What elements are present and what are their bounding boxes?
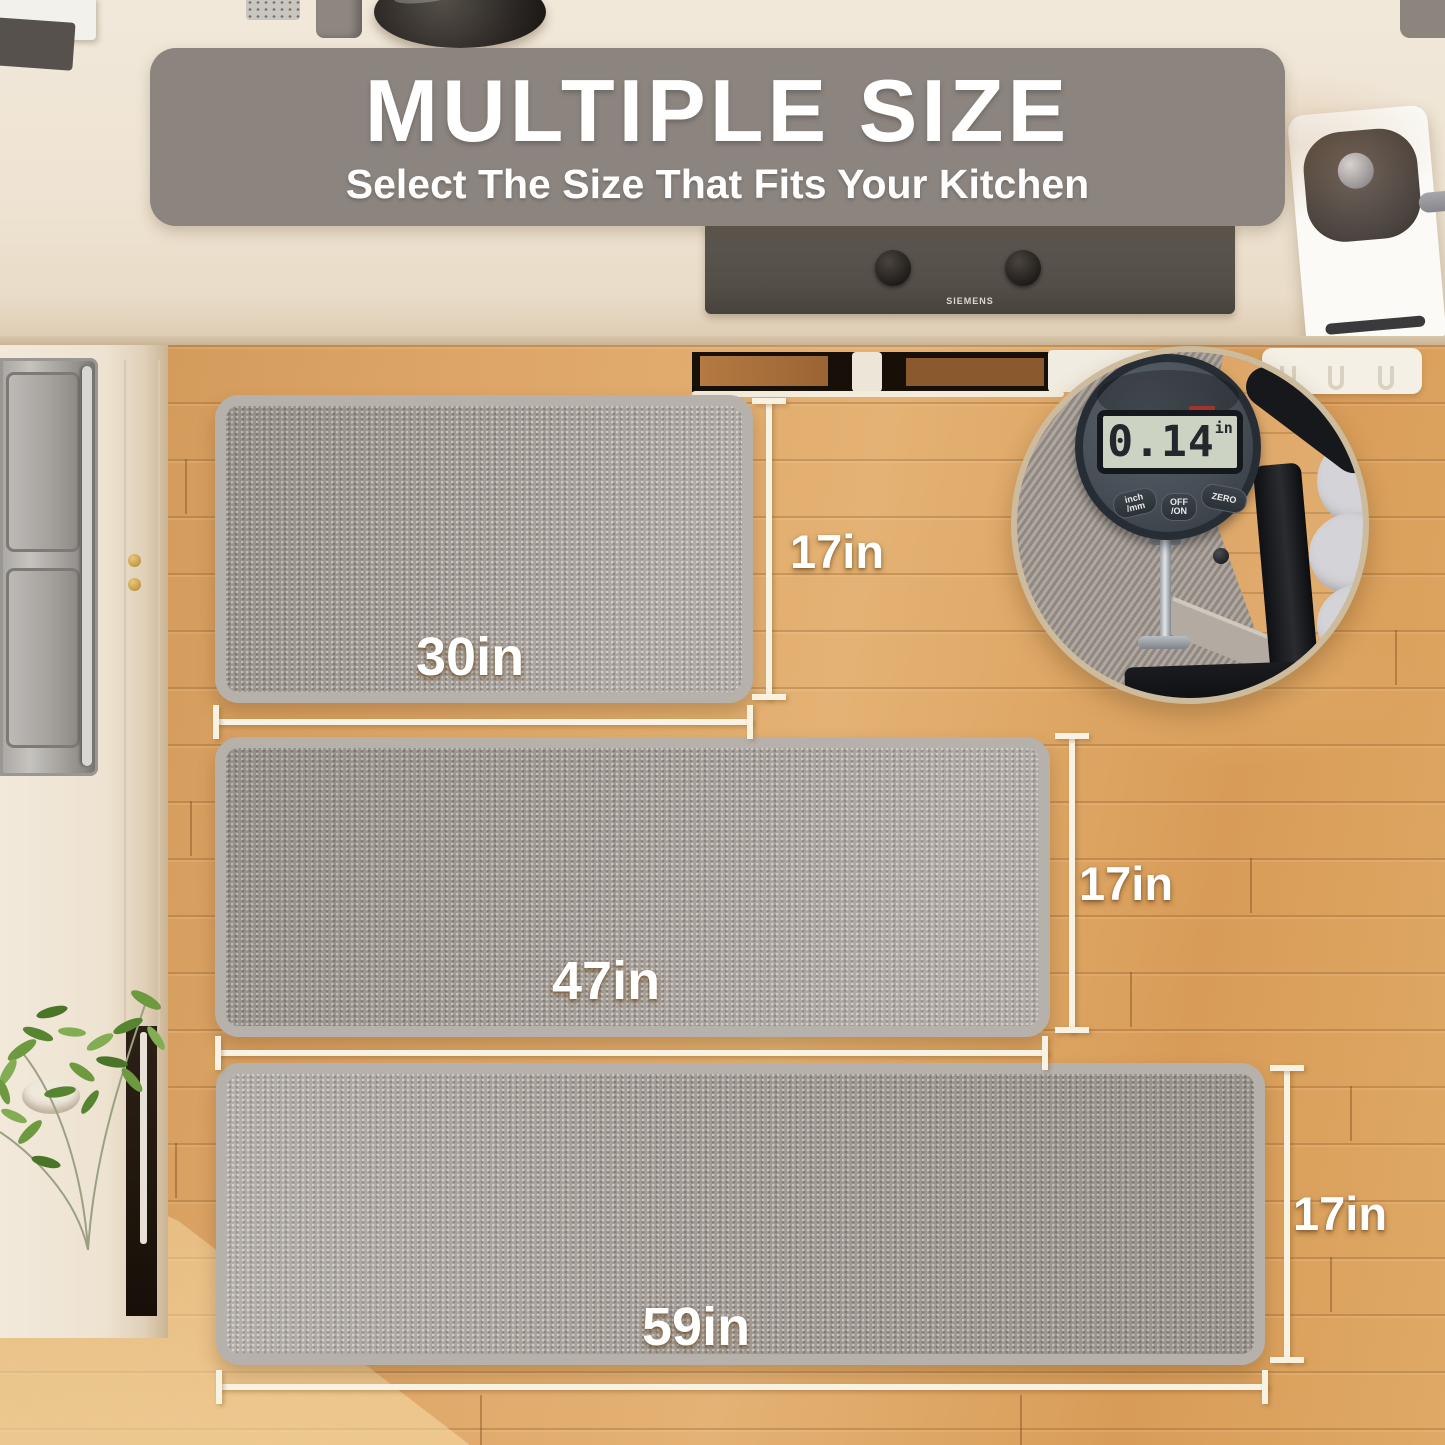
cutting-board	[906, 358, 1044, 386]
cabinet-groove	[124, 360, 126, 1030]
clamp-screw	[1213, 548, 1229, 564]
dim-line-height-mat1	[766, 398, 772, 700]
dishwasher-handle	[82, 366, 92, 766]
dim-line-height-mat3	[1284, 1065, 1290, 1363]
dishwasher	[0, 358, 98, 776]
gauge-button-text: ZERO	[1211, 491, 1237, 505]
thickness-inset-circle: 0.14 in inch /mm OFF /ON ZERO	[1011, 346, 1369, 704]
mat3-height-label: 17in	[1293, 1186, 1387, 1241]
gauge-reading: 0.14	[1107, 421, 1215, 464]
plank-seam	[480, 1395, 482, 1445]
dim-line-width-mat3	[216, 1384, 1268, 1390]
gauge-button-text: /ON	[1171, 507, 1187, 516]
gauge-stem	[1160, 540, 1171, 638]
scale-display	[1325, 315, 1426, 335]
stove: SIEMENS	[705, 222, 1235, 314]
mat2-height-label: 17in	[1079, 856, 1173, 911]
grater	[246, 0, 300, 20]
cabinet-groove	[158, 360, 160, 1030]
gauge-button-off-on: OFF /ON	[1161, 493, 1197, 521]
product-size-infographic: SIEMENS	[0, 0, 1445, 1445]
mat1-height-label: 17in	[790, 524, 884, 579]
stove-knob	[1005, 250, 1041, 286]
plank-seam	[1020, 1395, 1022, 1445]
corner-appliance	[1400, 0, 1445, 38]
board-bracket	[852, 352, 882, 392]
mat3-width-label: 59in	[642, 1296, 750, 1358]
plank-seam	[1130, 972, 1132, 1027]
mat2-width-label: 47in	[552, 950, 660, 1012]
plank-seam	[1330, 1257, 1332, 1312]
gauge-clamp-base	[1124, 660, 1335, 704]
stove-knob	[875, 250, 911, 286]
dim-line-width-mat2	[215, 1050, 1048, 1056]
stove-brand-label: SIEMENS	[905, 296, 1035, 306]
under-counter-slot	[692, 352, 1064, 392]
headline-banner: MULTIPLE SIZE Select The Size That Fits …	[150, 48, 1285, 226]
plank-seam	[185, 459, 187, 514]
gauge-button-text: /mm	[1126, 501, 1146, 514]
cabinet-knob	[128, 554, 141, 567]
gauge-foot	[1138, 636, 1190, 649]
dishwasher-panel	[6, 372, 80, 552]
plank-seam	[1395, 630, 1397, 685]
left-cabinetry	[0, 345, 168, 1338]
dim-line-height-mat2	[1069, 733, 1075, 1033]
scale-handle	[1418, 188, 1445, 214]
plank-seam	[1350, 1086, 1352, 1141]
banner-subtitle: Select The Size That Fits Your Kitchen	[346, 161, 1089, 208]
banner-title: MULTIPLE SIZE	[365, 67, 1070, 155]
gauge-unit: in	[1215, 419, 1233, 437]
hook-icon	[1378, 366, 1394, 390]
slot-ledge	[692, 391, 1064, 397]
plant	[0, 940, 188, 1250]
dishwasher-panel	[6, 568, 80, 748]
gauge-lcd: 0.14 in	[1097, 410, 1243, 474]
utensil-canister	[316, 0, 362, 38]
dark-tray	[0, 17, 76, 70]
dim-line-width-mat1	[213, 719, 753, 725]
plank-seam	[1250, 858, 1252, 913]
cutting-board	[700, 356, 828, 386]
cabinet-knob	[128, 578, 141, 591]
mat1-width-label: 30in	[416, 626, 524, 688]
plank-seam	[190, 801, 192, 856]
